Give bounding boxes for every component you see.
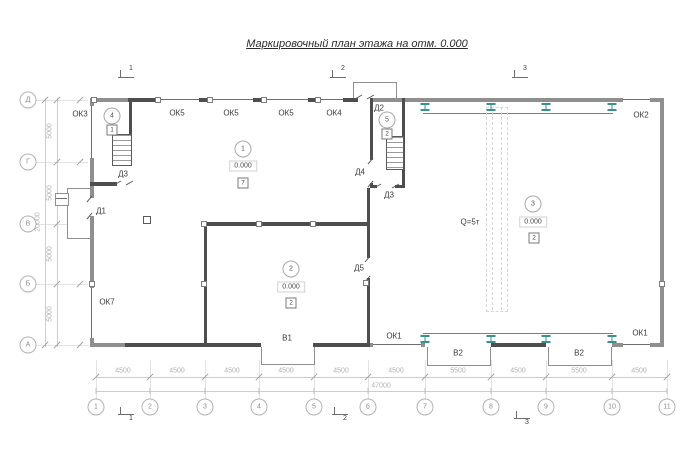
type-mark-value: 2 — [532, 235, 536, 242]
window-glass-line — [210, 99, 253, 100]
axis-col-bubble: 5 — [306, 399, 323, 416]
axis-row-label: Д — [26, 97, 31, 104]
label-gate-v2-left: В2 — [453, 349, 463, 358]
stair-flight-room5 — [386, 136, 404, 170]
axis-col-bubble: 11 — [659, 399, 676, 416]
axis-row-bubble: Б — [20, 276, 37, 293]
axis-col-bubble: 2 — [142, 399, 159, 416]
dim-label: 5000 — [47, 246, 54, 262]
dim-line-segments — [96, 377, 667, 378]
window-glass-line — [91, 288, 92, 338]
jamb-marker — [89, 281, 95, 287]
dim-label: 4500 — [631, 368, 647, 375]
dim-tick — [368, 388, 369, 394]
jamb-marker — [256, 221, 262, 227]
axis-col-label: 7 — [423, 404, 427, 411]
axis-row-label: Б — [26, 281, 31, 288]
jamb-marker — [207, 97, 213, 103]
wall-pier — [125, 343, 261, 347]
dim-tick — [425, 388, 426, 394]
stair-flight-room4 — [112, 134, 132, 166]
label-door-d4: Д4 — [355, 168, 365, 177]
label-door-d3-mid: Д3 — [384, 191, 394, 200]
elevation-value: 0.000 — [282, 284, 300, 291]
crane-bridge-rail — [501, 107, 502, 310]
axis-col-label: 2 — [148, 404, 152, 411]
axis-row-bubble: Д — [20, 92, 37, 109]
room-2-elevation: 0.000 — [277, 282, 305, 293]
type-mark-value: 2 — [385, 131, 389, 138]
dim-tick — [205, 388, 206, 394]
axis-row-label: Г — [26, 159, 30, 166]
partition-axis-v — [204, 222, 370, 226]
dim-label: 4500 — [224, 368, 240, 375]
dim-label: 5000 — [47, 306, 54, 322]
dim-label: 5500 — [571, 368, 587, 375]
elevation-value: 0.000 — [234, 163, 252, 170]
dim-tick — [667, 388, 668, 394]
room-1-number-bubble: 1 — [235, 141, 252, 158]
label-window-ok3: ОК3 — [72, 110, 87, 119]
crane-runway-top — [423, 113, 613, 114]
crane-support-icon — [487, 335, 496, 343]
dim-tick — [96, 388, 97, 394]
dim-label: 5000 — [47, 185, 54, 201]
wall-pier — [313, 343, 368, 347]
jamb-marker — [155, 97, 161, 103]
label-window-ok5-3: ОК5 — [278, 109, 293, 118]
axis-col-bubble: 3 — [197, 399, 214, 416]
room-number: 5 — [385, 117, 389, 124]
axis-col-bubble: 1 — [88, 399, 105, 416]
jamb-marker — [659, 281, 665, 287]
section-mark-3-bottom: 3 — [514, 410, 534, 426]
section-bar — [118, 77, 134, 78]
label-window-ok1-right: ОК1 — [632, 329, 647, 338]
jamb-marker — [363, 280, 369, 286]
axis-col-label: 1 — [94, 404, 98, 411]
section-tick — [334, 407, 335, 414]
axis-col-label: 6 — [366, 404, 370, 411]
label-window-ok4: ОК4 — [326, 109, 341, 118]
dim-tick — [314, 388, 315, 394]
type-mark-value: 7 — [241, 180, 245, 187]
wall-pier — [128, 98, 158, 102]
dim-line-total — [96, 391, 667, 392]
jamb-marker — [310, 221, 316, 227]
room-5-type-mark: 2 — [382, 129, 393, 140]
crane-support-icon — [487, 103, 496, 111]
dim-label: 4500 — [333, 368, 349, 375]
section-bar — [512, 77, 528, 78]
room-1-type-mark: 7 — [238, 178, 249, 189]
dim-label: 4500 — [115, 368, 131, 375]
label-door-d1: Д1 — [96, 207, 106, 216]
dim-total-label: 47000 — [371, 383, 390, 390]
crane-support-icon — [421, 335, 430, 343]
crane-bridge-rail — [492, 107, 493, 310]
axis-col-label: 11 — [663, 404, 670, 411]
axis-row-bubble: Г — [20, 154, 37, 171]
column-marker — [143, 216, 151, 224]
axis-row-label: В — [26, 221, 31, 228]
section-number: 2 — [341, 65, 345, 72]
door-mark-d3-left — [126, 181, 133, 186]
section-mark-1-top: 1 — [118, 64, 138, 80]
partition-axis-6-lower — [367, 278, 370, 347]
gate-apron-v1 — [261, 347, 315, 365]
section-number: 3 — [525, 419, 529, 426]
axis-col-label: 4 — [257, 404, 261, 411]
crane-support-icon — [421, 103, 430, 111]
room-3-elevation: 0.000 — [519, 217, 547, 228]
section-tick — [120, 70, 121, 77]
axis-col-bubble: 9 — [538, 399, 555, 416]
jamb-marker — [201, 281, 207, 287]
room-2-number-bubble: 2 — [283, 261, 300, 278]
section-mark-3-top: 3 — [512, 64, 532, 80]
entrance-porch-left — [67, 188, 91, 239]
room-5-number-bubble: 5 — [379, 112, 396, 129]
axis-col-bubble: 4 — [251, 399, 268, 416]
axis-row-bubble: В — [20, 216, 37, 233]
section-number: 1 — [129, 415, 133, 422]
crane-support-icon — [542, 103, 551, 111]
crane-support-icon — [608, 103, 617, 111]
crane-bridge-outline — [486, 107, 508, 312]
section-mark-2-top: 2 — [330, 64, 350, 80]
axis-col-bubble: 10 — [604, 399, 621, 416]
dim-label: 4500 — [388, 368, 404, 375]
dim-tick — [491, 388, 492, 394]
window-glass-line — [318, 99, 343, 100]
room-3-number-bubble: 3 — [525, 196, 542, 213]
crane-support-icon — [608, 335, 617, 343]
label-door-d2: Д2 — [374, 104, 384, 113]
entrance-step-line — [56, 198, 67, 199]
section-number: 1 — [129, 65, 133, 72]
label-window-ok5-2: ОК5 — [223, 109, 238, 118]
wall-pier — [491, 343, 546, 347]
axis-col-label: 8 — [489, 404, 493, 411]
crane-support-icon — [542, 335, 551, 343]
window-glass-line — [373, 344, 421, 345]
axis-col-label: 9 — [544, 404, 548, 411]
axis-col-label: 5 — [312, 404, 316, 411]
dim-tick — [259, 388, 260, 394]
partition-axis-6-upper — [367, 188, 370, 258]
dim-label: 5000 — [47, 123, 54, 139]
label-window-ok7: ОК7 — [99, 298, 114, 307]
label-gate-v2-right: В2 — [574, 349, 584, 358]
dim-tick — [150, 388, 151, 394]
type-mark-value: 1 — [110, 127, 114, 134]
section-mark-1-bottom: 1 — [118, 406, 138, 422]
window-glass-line — [91, 106, 92, 158]
window-glass-line — [623, 344, 650, 345]
room-number: 2 — [289, 266, 293, 273]
page-title: Маркировочный план этажа на отм. 0.000 — [246, 38, 468, 50]
axis-col-bubble: 7 — [417, 399, 434, 416]
dim-label: 4500 — [169, 368, 185, 375]
entrance-step — [55, 193, 69, 206]
label-crane-capacity: Q=5т — [460, 218, 479, 227]
section-mark-2-bottom: 2 — [332, 406, 352, 422]
axis-col-label: 3 — [203, 404, 207, 411]
section-bar — [330, 77, 346, 78]
label-window-ok1-left: ОК1 — [386, 332, 401, 341]
dim-tick — [612, 388, 613, 394]
jamb-marker — [261, 97, 267, 103]
window-glass-line — [158, 99, 199, 100]
axis-col-bubble: 6 — [360, 399, 377, 416]
axis-row-bubble: А — [20, 337, 37, 354]
room-number: 1 — [241, 146, 245, 153]
room-4-number-bubble: 4 — [104, 108, 121, 125]
section-tick — [514, 70, 515, 77]
gate-opening-v1 — [261, 343, 313, 347]
type-mark-value: 2 — [289, 300, 293, 307]
label-window-ok5-1: ОК5 — [169, 109, 184, 118]
axis-col-bubble: 8 — [483, 399, 500, 416]
label-door-d5: Д5 — [354, 264, 364, 273]
axis-row-label: А — [26, 342, 31, 349]
section-number: 3 — [523, 65, 527, 72]
room-number: 4 — [110, 113, 114, 120]
room-2-type-mark: 2 — [286, 298, 297, 309]
dim-tick — [546, 388, 547, 394]
jamb-marker — [91, 97, 97, 103]
section-tick — [516, 411, 517, 418]
dim-label: 4500 — [510, 368, 526, 375]
label-gate-v1: В1 — [282, 334, 292, 343]
door-mark-d4 — [368, 158, 374, 165]
window-glass-line — [623, 99, 650, 100]
axis-col-label: 10 — [608, 404, 616, 411]
stair5-left-wall-upper — [370, 98, 373, 160]
floor-plan-canvas: Маркировочный план этажа на отм. 0.000 4… — [0, 0, 700, 474]
label-door-d3-left: Д3 — [118, 170, 128, 179]
room-4-type-mark: 1 — [107, 125, 118, 136]
jamb-marker — [201, 221, 207, 227]
dim-label: 4500 — [278, 368, 294, 375]
room-number: 3 — [531, 201, 535, 208]
jamb-marker — [315, 97, 321, 103]
room-3-type-mark: 2 — [529, 233, 540, 244]
section-tick — [120, 407, 121, 414]
gate-opening-v2-left — [425, 343, 491, 347]
crane-runway-bottom — [423, 333, 613, 334]
dim-label: 5500 — [450, 368, 466, 375]
section-number: 2 — [343, 415, 347, 422]
label-window-ok2: ОК2 — [633, 111, 648, 120]
door-mark-d5 — [365, 256, 371, 263]
section-tick — [332, 70, 333, 77]
gate-opening-v2-right — [546, 343, 612, 347]
elevation-value: 0.000 — [524, 219, 542, 226]
window-glass-line — [264, 99, 308, 100]
wall-right — [660, 98, 664, 347]
room-1-elevation: 0.000 — [229, 161, 257, 172]
